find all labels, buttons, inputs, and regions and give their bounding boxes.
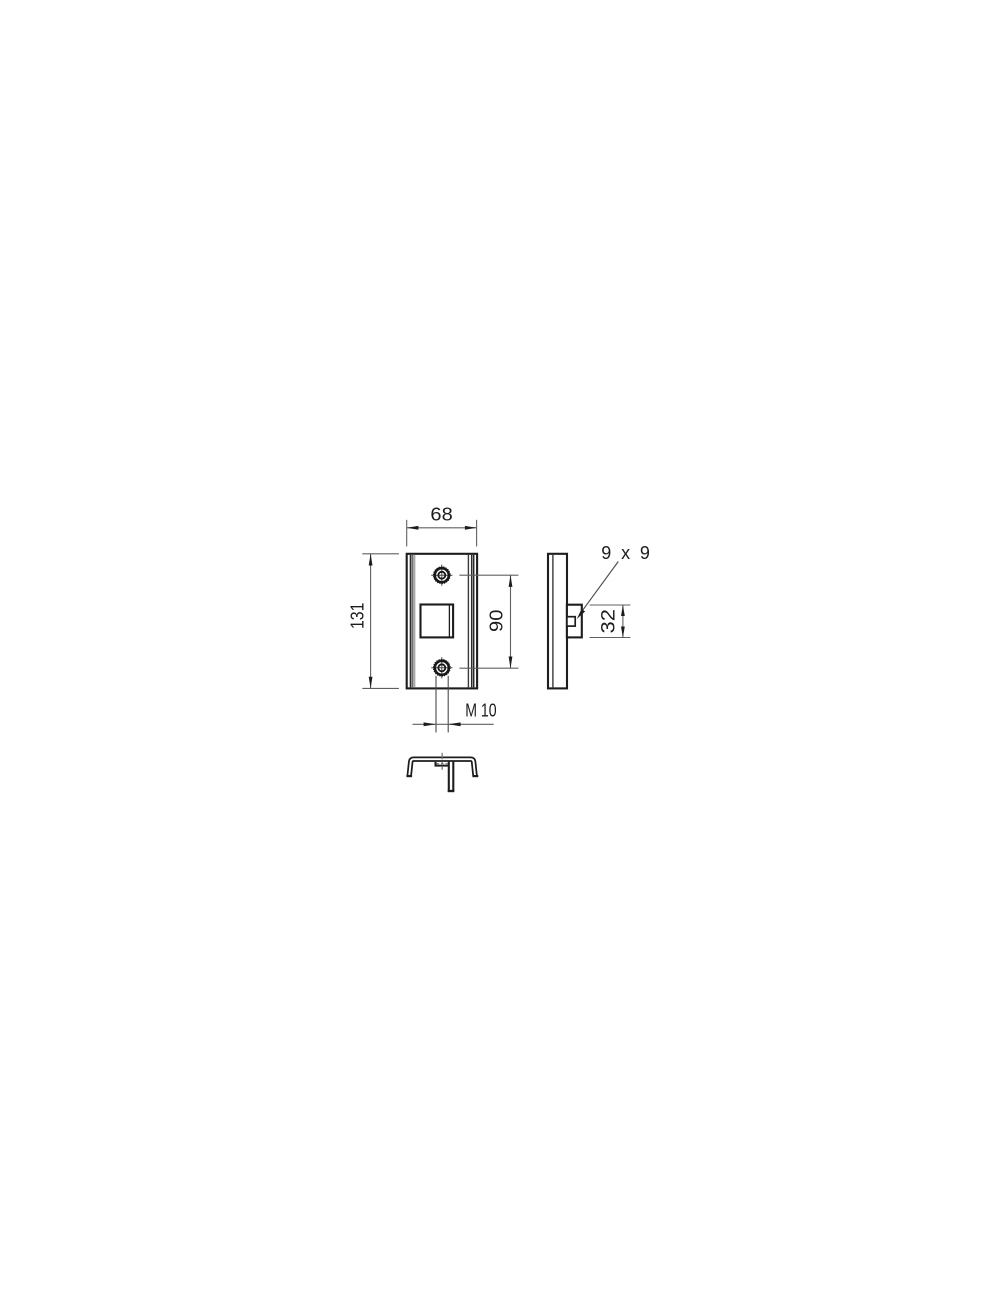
- svg-text:131: 131: [347, 603, 368, 630]
- svg-text:68: 68: [430, 504, 452, 525]
- svg-text:90: 90: [485, 610, 506, 632]
- svg-text:M 10: M 10: [465, 699, 496, 720]
- svg-text:9 x 9: 9 x 9: [601, 543, 650, 563]
- svg-text:32: 32: [597, 609, 619, 634]
